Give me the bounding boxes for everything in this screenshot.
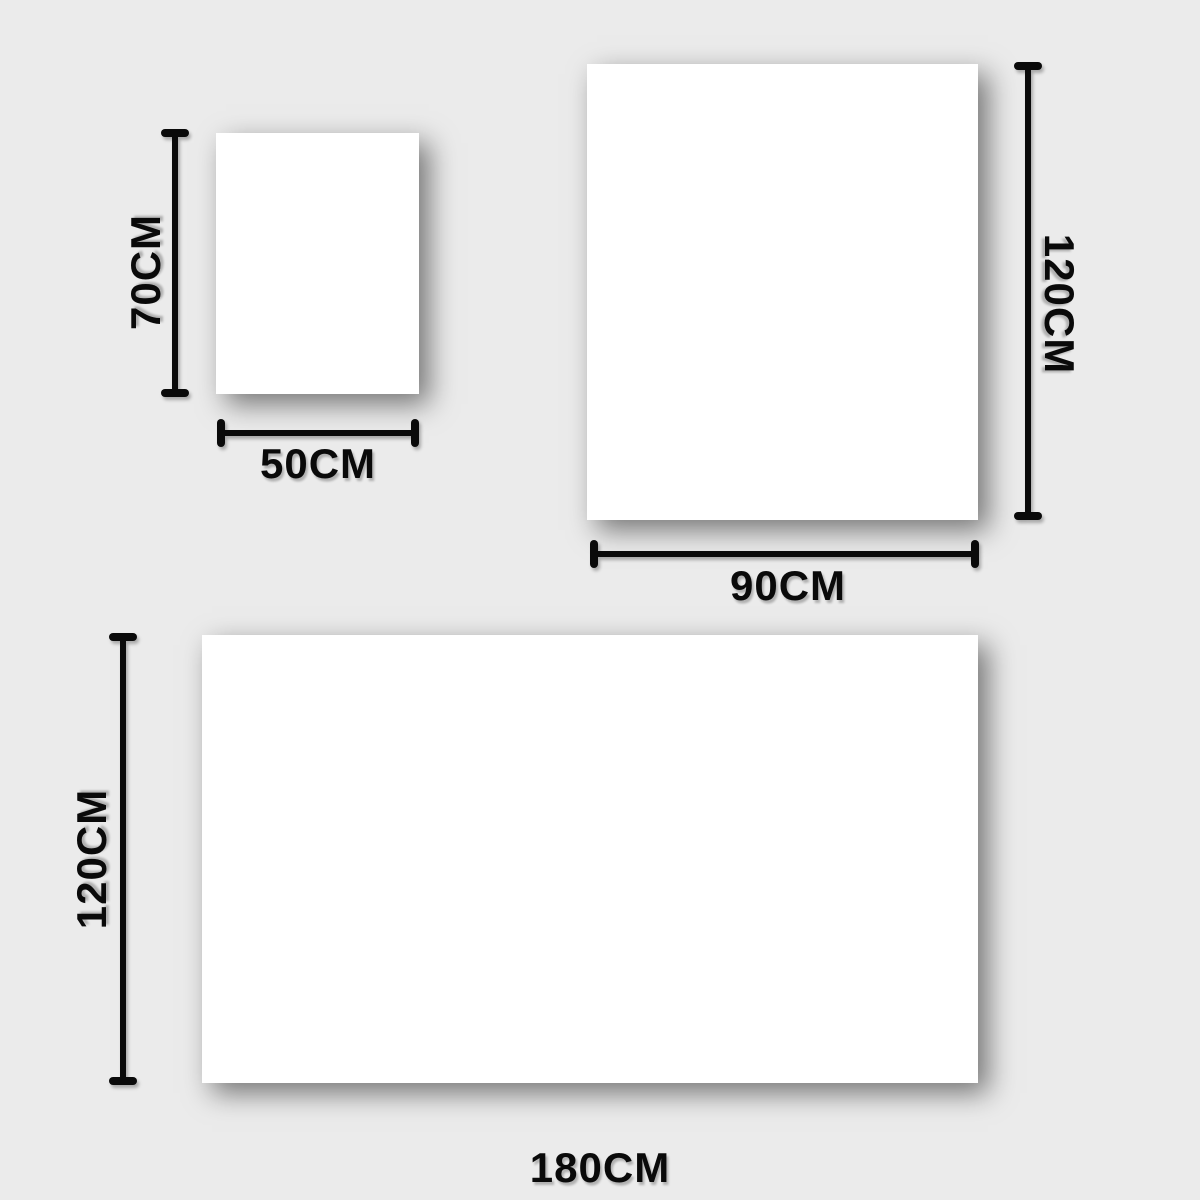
height-label-small: 70CM — [122, 214, 170, 330]
dimension-endcap — [161, 389, 189, 397]
dimension-bar — [172, 133, 178, 393]
dimension-bar — [594, 551, 975, 557]
size-panel-large — [202, 635, 978, 1083]
dimension-bar — [120, 637, 126, 1081]
dimension-bar — [221, 430, 415, 436]
width-label-medium: 90CM — [730, 562, 846, 610]
dimension-bar — [1025, 66, 1031, 516]
size-panel-small — [216, 133, 419, 394]
dimension-endcap — [971, 540, 979, 568]
width-label-small: 50CM — [260, 440, 376, 488]
dimension-endcap — [411, 419, 419, 447]
size-comparison-diagram: 70CM 50CM 120CM 90CM 120CM 180CM — [0, 0, 1200, 1200]
dimension-endcap — [109, 1077, 137, 1085]
height-label-medium: 120CM — [1035, 234, 1083, 374]
width-label-large: 180CM — [530, 1144, 670, 1192]
dimension-endcap — [1014, 512, 1042, 520]
height-label-large: 120CM — [68, 789, 116, 929]
size-panel-medium — [587, 64, 978, 520]
